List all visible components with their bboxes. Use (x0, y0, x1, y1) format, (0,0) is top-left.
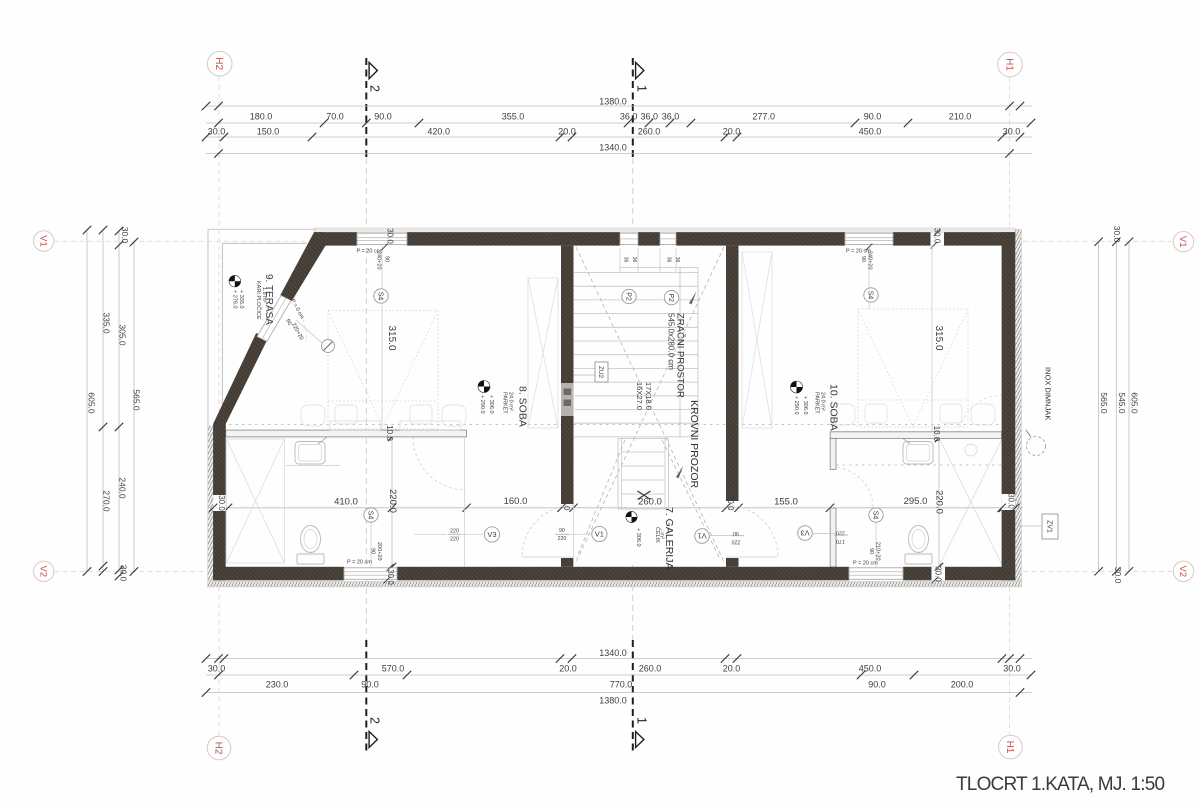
svg-text:305.0: 305.0 (118, 324, 128, 346)
svg-text:V1: V1 (37, 235, 48, 247)
svg-text:220: 220 (836, 530, 845, 536)
svg-text:10.0: 10.0 (932, 426, 941, 442)
svg-text:17X18.0: 17X18.0 (644, 382, 653, 410)
svg-text:8. SOBA: 8. SOBA (517, 386, 529, 427)
svg-text:605.0: 605.0 (1130, 392, 1140, 414)
svg-text:24.0 m²: 24.0 m² (820, 392, 826, 411)
svg-text:565.0: 565.0 (132, 389, 142, 411)
svg-text:H2: H2 (213, 57, 224, 70)
svg-text:450.0: 450.0 (859, 664, 882, 674)
svg-text:P = 20 cm: P = 20 cm (347, 560, 372, 566)
svg-text:210.0: 210.0 (949, 112, 972, 122)
svg-text:1.8 m²: 1.8 m² (261, 287, 267, 303)
svg-text:1380.0: 1380.0 (599, 696, 627, 706)
svg-text:155.0: 155.0 (774, 497, 798, 508)
svg-text:545.0x280.0 cm: 545.0x280.0 cm (667, 313, 676, 370)
svg-text:36: 36 (674, 257, 680, 263)
svg-text:24.0 m²: 24.0 m² (508, 392, 514, 411)
svg-text:20.0: 20.0 (726, 495, 735, 511)
svg-text:295.0: 295.0 (904, 496, 928, 507)
svg-text:PARKET: PARKET (502, 392, 508, 414)
svg-text:220: 220 (558, 536, 567, 542)
svg-text:180.0: 180.0 (250, 112, 273, 122)
svg-text:V1: V1 (1177, 236, 1188, 248)
svg-text:P2: P2 (667, 293, 674, 302)
svg-text:V3: V3 (487, 530, 496, 539)
svg-text:S4: S4 (377, 292, 384, 301)
svg-text:10.0: 10.0 (385, 425, 394, 441)
svg-text:230.0: 230.0 (266, 680, 289, 690)
svg-text:+ 306.0: + 306.0 (635, 528, 641, 547)
svg-text:220.0: 220.0 (387, 489, 398, 513)
svg-text:10. SOBA: 10. SOBA (828, 384, 840, 431)
svg-text:420.0: 420.0 (427, 127, 450, 137)
svg-text:30.0: 30.0 (119, 565, 129, 582)
svg-text:90: 90 (384, 256, 390, 262)
svg-text:30.0: 30.0 (217, 495, 226, 511)
svg-text:KROVNI PROZOR: KROVNI PROZOR (688, 400, 700, 489)
svg-text:1340.0: 1340.0 (599, 648, 627, 658)
svg-text:20.0: 20.0 (562, 495, 571, 511)
svg-text:36.0: 36.0 (620, 112, 638, 122)
svg-text:200+20: 200+20 (376, 542, 382, 561)
svg-text:90: 90 (370, 548, 376, 554)
svg-text:355.0: 355.0 (502, 112, 525, 122)
svg-text:2: 2 (368, 717, 382, 724)
svg-text:20.0: 20.0 (558, 127, 576, 137)
svg-text:S4: S4 (872, 511, 879, 520)
svg-text:30.0: 30.0 (208, 664, 226, 674)
svg-text:V1: V1 (595, 530, 604, 539)
svg-text:V2: V2 (1177, 565, 1188, 577)
svg-text:H1: H1 (1003, 58, 1014, 71)
svg-text:+ 290.0: + 290.0 (793, 396, 799, 415)
svg-text:90.0: 90.0 (361, 680, 379, 690)
svg-text:240.0: 240.0 (118, 477, 128, 499)
svg-text:220.0: 220.0 (934, 490, 945, 514)
svg-text:1340.0: 1340.0 (599, 143, 627, 153)
svg-text:2: 2 (368, 85, 382, 92)
svg-text:770.0: 770.0 (610, 680, 633, 690)
svg-text:1380.0: 1380.0 (599, 96, 627, 106)
svg-text:90.0: 90.0 (374, 112, 392, 122)
svg-text:90: 90 (559, 528, 565, 534)
svg-text:S4: S4 (367, 511, 374, 520)
svg-text:TLOCRT 1.KATA, MJ. 1:50: TLOCRT 1.KATA, MJ. 1:50 (956, 774, 1164, 795)
svg-text:+ 306.0: + 306.0 (488, 395, 494, 414)
svg-text:70.0: 70.0 (326, 112, 344, 122)
svg-text:270.0: 270.0 (102, 490, 112, 512)
svg-text:S4: S4 (867, 291, 874, 300)
svg-text:30.0: 30.0 (1007, 493, 1016, 509)
svg-text:315.0: 315.0 (933, 325, 944, 350)
svg-text:30.0: 30.0 (1113, 567, 1123, 584)
svg-text:KARI.PLOČICE: KARI.PLOČICE (255, 281, 262, 320)
svg-text:30.0: 30.0 (208, 127, 226, 137)
svg-text:220: 220 (450, 537, 459, 543)
svg-text:PARKET: PARKET (814, 392, 820, 414)
svg-text:16X27.0: 16X27.0 (635, 382, 644, 410)
svg-text:450.0: 450.0 (859, 127, 882, 137)
svg-text:+ 276.0: + 276.0 (232, 290, 238, 309)
svg-text:30.0: 30.0 (120, 227, 130, 244)
svg-text:V3: V3 (800, 528, 809, 537)
svg-text:36: 36 (631, 257, 637, 263)
svg-text:20.0: 20.0 (559, 664, 577, 674)
svg-text:90.0: 90.0 (868, 680, 886, 690)
svg-text:220: 220 (450, 528, 459, 534)
svg-text:20.0: 20.0 (723, 127, 741, 137)
svg-text:20.0: 20.0 (723, 664, 741, 674)
svg-text:+ 335.0: + 335.0 (238, 290, 244, 309)
svg-text:605.0: 605.0 (87, 392, 97, 414)
svg-text:90.0: 90.0 (864, 112, 882, 122)
svg-text:1: 1 (635, 85, 649, 92)
svg-text:90: 90 (733, 530, 739, 536)
svg-text:H2: H2 (212, 742, 223, 755)
svg-text:1: 1 (635, 717, 649, 724)
svg-text:P = 20 cm: P = 20 cm (853, 561, 878, 567)
svg-text:36.0: 36.0 (641, 112, 659, 122)
svg-text:36.0: 36.0 (662, 112, 680, 122)
svg-text:ZV1: ZV1 (1046, 520, 1053, 533)
svg-text:- m²: - m² (659, 529, 665, 539)
svg-text:36: 36 (623, 257, 629, 263)
svg-text:260.0: 260.0 (638, 497, 662, 508)
svg-text:H1: H1 (1004, 741, 1015, 754)
svg-text:30.0: 30.0 (1003, 664, 1021, 674)
svg-text:410.0: 410.0 (334, 497, 358, 508)
svg-text:V1: V1 (697, 531, 706, 540)
svg-text:335.0: 335.0 (102, 312, 112, 334)
svg-text:30.0: 30.0 (1112, 226, 1122, 243)
svg-text:+ 290.0: + 290.0 (479, 395, 485, 414)
svg-text:200.0: 200.0 (951, 680, 974, 690)
svg-text:30.0: 30.0 (385, 228, 394, 244)
svg-text:V2: V2 (37, 565, 48, 577)
svg-text:150.0: 150.0 (257, 127, 280, 137)
svg-text:260.0: 260.0 (638, 127, 661, 137)
svg-text:545.0: 545.0 (1117, 392, 1127, 414)
svg-text:210+20: 210+20 (875, 542, 881, 561)
svg-text:160.0: 160.0 (504, 496, 528, 507)
svg-text:30.0: 30.0 (1003, 127, 1021, 137)
svg-text:INOX DIMNJAK: INOX DIMNJAK (1044, 367, 1053, 420)
svg-text:P2: P2 (625, 292, 632, 301)
svg-text:220: 220 (732, 539, 741, 545)
svg-text:+ 306.0: + 306.0 (802, 396, 808, 415)
svg-text:315.0: 315.0 (386, 325, 397, 350)
svg-text:240+20: 240+20 (376, 251, 382, 270)
svg-text:90: 90 (860, 256, 866, 262)
svg-text:570.0: 570.0 (382, 664, 405, 674)
svg-text:260.0: 260.0 (639, 664, 662, 674)
svg-text:565.0: 565.0 (1099, 392, 1109, 414)
svg-text:277.0: 277.0 (752, 112, 775, 122)
svg-text:ZU2: ZU2 (597, 366, 604, 379)
svg-text:240+20: 240+20 (867, 251, 873, 270)
svg-text:90: 90 (868, 548, 874, 554)
svg-text:36: 36 (666, 257, 672, 263)
svg-text:170: 170 (836, 538, 845, 544)
